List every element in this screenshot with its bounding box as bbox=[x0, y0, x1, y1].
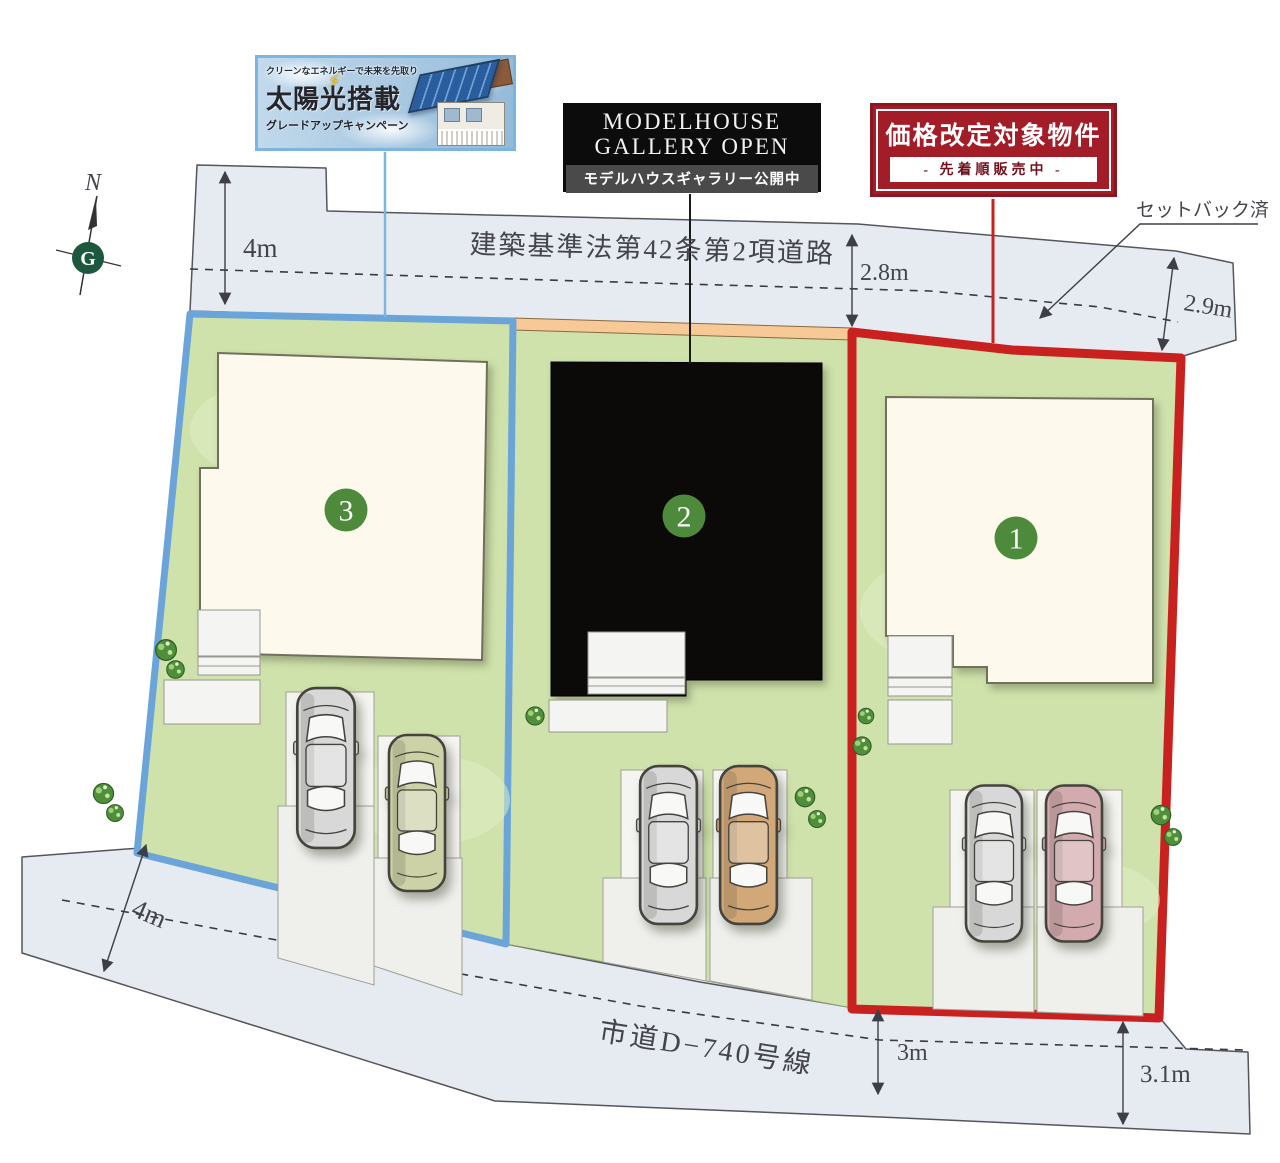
lot-3-badge: 3 bbox=[325, 489, 368, 532]
lightning-icon: ⚡ bbox=[328, 71, 341, 92]
setback-note: セットバック済 bbox=[1136, 199, 1269, 221]
price-revision-banner: 価格改定対象物件 - 先着順販売中 - bbox=[870, 103, 1117, 197]
lot-1-badge: 1 bbox=[995, 517, 1038, 560]
compass-north-label: N bbox=[84, 170, 103, 196]
solar-banner-subtitle: グレードアップキャンペーン bbox=[266, 117, 421, 133]
modelhouse-title-line1: MODELHOUSE bbox=[566, 109, 818, 134]
lot-1-porch bbox=[888, 636, 952, 744]
car-lot1-pink bbox=[1043, 786, 1106, 942]
lot-1-number: 1 bbox=[1009, 523, 1024, 556]
car-lot2-tan bbox=[717, 766, 781, 924]
lot-3-number: 3 bbox=[339, 495, 354, 528]
modelhouse-title-line2: GALLERY OPEN bbox=[566, 134, 818, 159]
lot-2-badge: 2 bbox=[663, 495, 706, 538]
solar-banner-tagline: クリーンなエネルギーで未来を先取り bbox=[266, 64, 421, 77]
measure-3-1m-label: 3.1m bbox=[1140, 1061, 1191, 1088]
site-plan-page: 3 2 1 N G 建築基準法第42条第2項道路 市道D−740号線 セットバッ… bbox=[0, 0, 1280, 1163]
price-banner-subtitle: - 先着順販売中 - bbox=[923, 163, 1063, 178]
solar-banner-title-row: 太陽光搭載 ⚡ bbox=[266, 79, 421, 116]
car-lot1-silver bbox=[963, 786, 1026, 942]
measure-3m-label: 3m bbox=[897, 1040, 928, 1066]
price-banner-title: 価格改定対象物件 bbox=[878, 116, 1109, 152]
car-lot2-silver bbox=[637, 766, 701, 924]
price-banner-inner: 価格改定対象物件 - 先着順販売中 - bbox=[876, 109, 1111, 191]
measure-4m-top-label: 4m bbox=[243, 233, 278, 263]
lot-1-parking bbox=[933, 790, 1143, 1016]
campaign-house-illustration bbox=[411, 62, 511, 146]
modelhouse-subtitle: モデルハウスギャラリー公開中 bbox=[566, 165, 818, 193]
measure-2-8m-label: 2.8m bbox=[860, 260, 909, 286]
price-banner-subbox: - 先着順販売中 - bbox=[890, 157, 1097, 182]
compass-monogram: G bbox=[80, 248, 96, 270]
solar-campaign-banner: クリーンなエネルギーで未来を先取り 太陽光搭載 ⚡ グレードアップキャンペーン bbox=[255, 55, 516, 151]
compass-needle bbox=[88, 197, 97, 230]
car-lot3-silver bbox=[294, 688, 359, 848]
lot-2-number: 2 bbox=[677, 501, 692, 534]
modelhouse-banner: MODELHOUSE GALLERY OPEN モデルハウスギャラリー公開中 bbox=[563, 103, 821, 192]
car-lot3-olive bbox=[386, 735, 449, 891]
solar-banner-text: クリーンなエネルギーで未来を先取り 太陽光搭載 ⚡ グレードアップキャンペーン bbox=[266, 64, 421, 133]
compass: N G bbox=[56, 170, 121, 295]
